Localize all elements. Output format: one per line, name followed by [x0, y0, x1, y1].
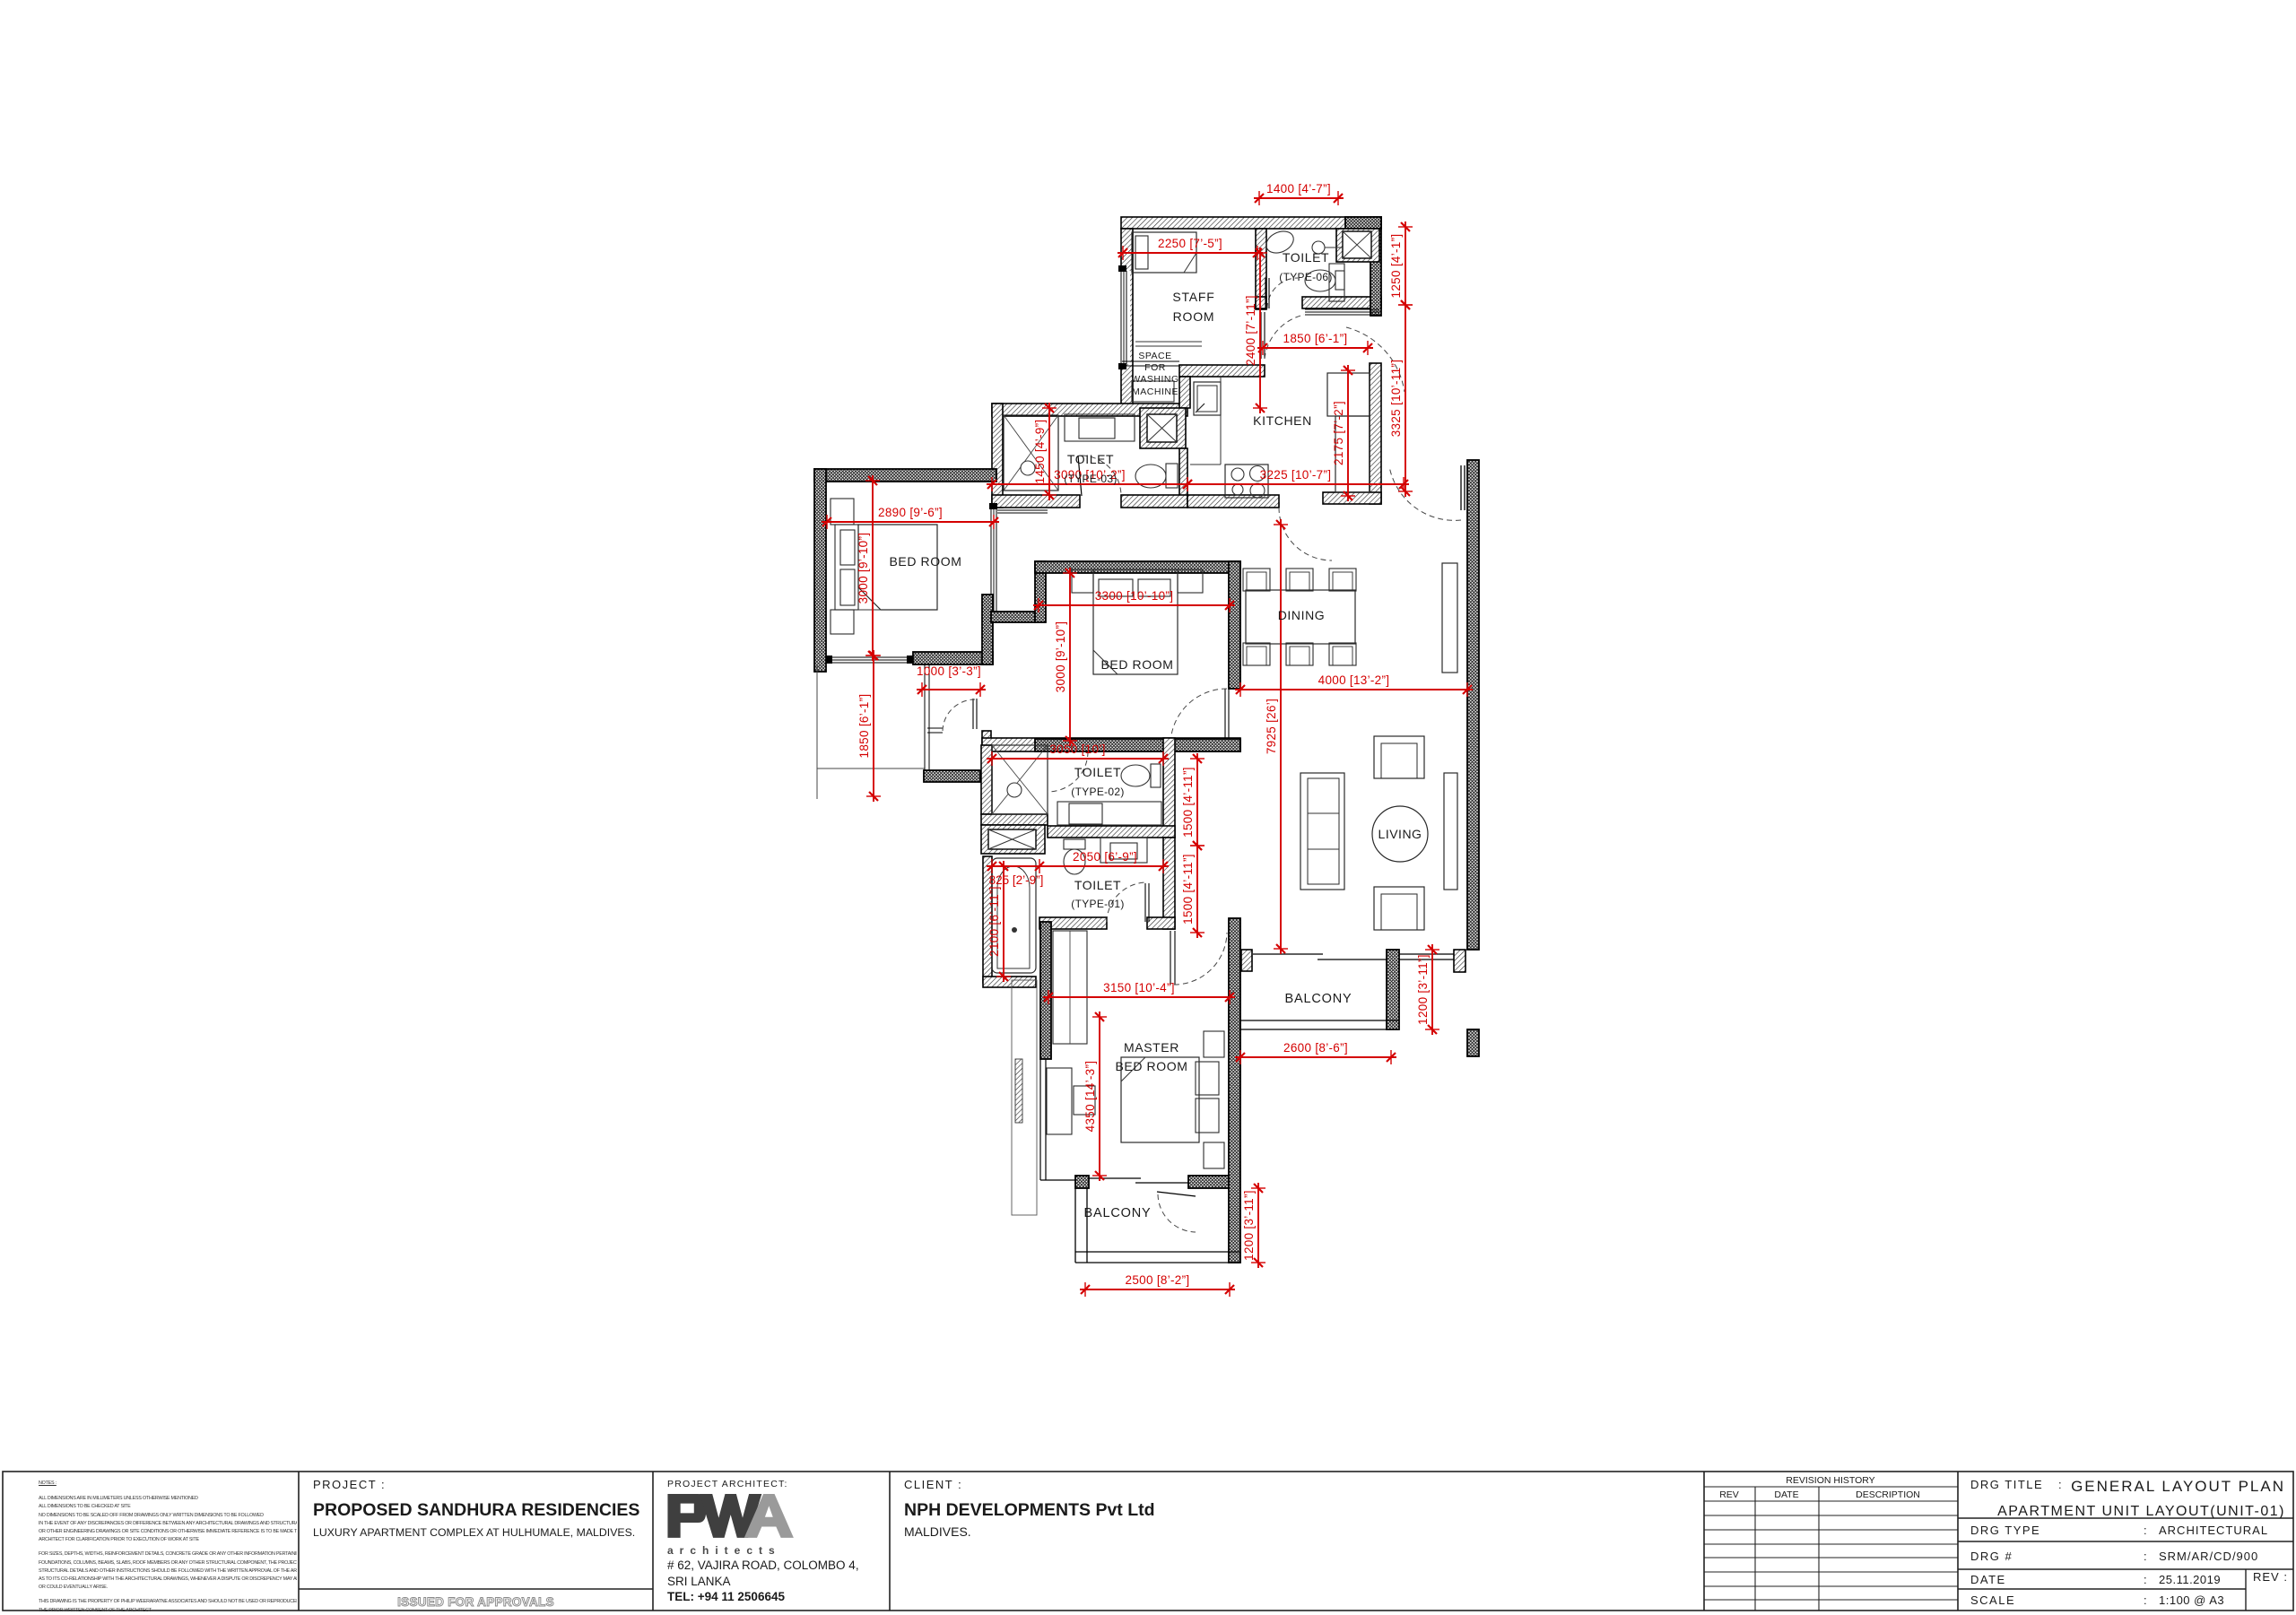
svg-text:REV :: REV : [2253, 1570, 2288, 1584]
svg-text:DATE: DATE [1970, 1573, 2006, 1586]
svg-text::: : [2144, 1524, 2147, 1537]
svg-text:25.11.2019: 25.11.2019 [2159, 1573, 2221, 1586]
svg-text:DRG TITLE: DRG TITLE [1970, 1478, 2043, 1491]
svg-text:ARCHITECTURAL: ARCHITECTURAL [2159, 1524, 2268, 1537]
svg-text:REVISION HISTORY: REVISION HISTORY [1786, 1475, 1874, 1486]
svg-text:GENERAL LAYOUT PLAN: GENERAL LAYOUT PLAN [2071, 1478, 2285, 1495]
svg-text::: : [2144, 1593, 2147, 1607]
svg-text:DRG #: DRG # [1970, 1550, 2013, 1563]
svg-text:APARTMENT UNIT LAYOUT(UNIT-01): APARTMENT UNIT LAYOUT(UNIT-01) [1997, 1504, 2285, 1519]
svg-text::: : [2058, 1478, 2062, 1491]
svg-text:DESCRIPTION: DESCRIPTION [1856, 1489, 1920, 1500]
svg-text::: : [2144, 1573, 2147, 1586]
svg-text:DRG TYPE: DRG TYPE [1970, 1524, 2040, 1537]
svg-text:DATE: DATE [1774, 1489, 1798, 1500]
svg-text:REV: REV [1719, 1489, 1739, 1500]
svg-text:SCALE: SCALE [1970, 1593, 2015, 1607]
svg-text:1:100 @ A3: 1:100 @ A3 [2159, 1593, 2224, 1607]
svg-text:SRM/AR/CD/900: SRM/AR/CD/900 [2159, 1550, 2258, 1563]
svg-text::: : [2144, 1550, 2147, 1563]
